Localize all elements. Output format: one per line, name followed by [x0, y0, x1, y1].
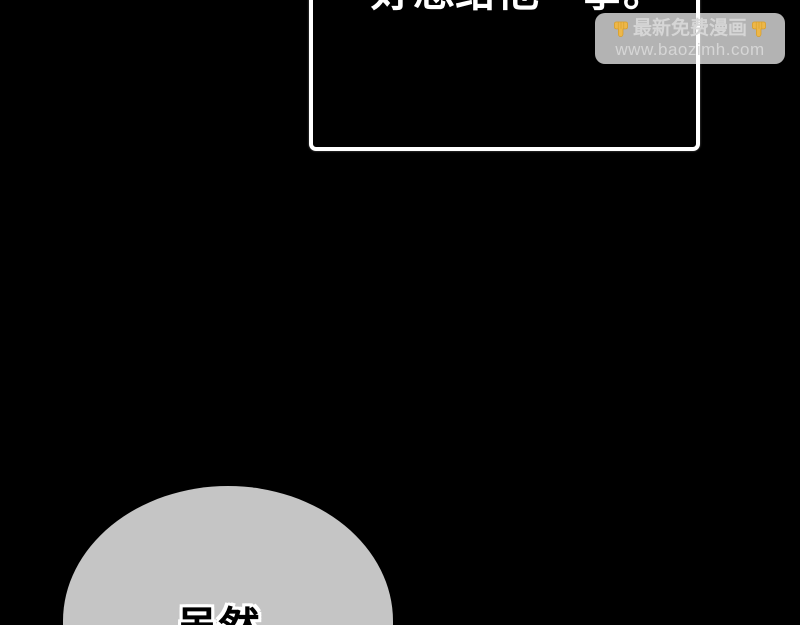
speech-bubble-bottom-partial-text: 虽然	[176, 607, 260, 625]
pointing-down-hand-icon	[749, 19, 769, 39]
watermark-line1: 最新免费漫画	[611, 18, 769, 40]
speech-bubble-top-text: 好想给他一拳。	[371, 0, 665, 13]
watermark-title: 最新免费漫画	[633, 18, 747, 40]
watermark-url: www.baozimh.com	[615, 40, 764, 60]
comic-page: 好想给他一拳。 最新免费漫画 www.baozimh.com 虽然	[0, 0, 800, 625]
pointing-down-hand-icon	[611, 19, 631, 39]
watermark-badge: 最新免费漫画 www.baozimh.com	[595, 13, 785, 64]
